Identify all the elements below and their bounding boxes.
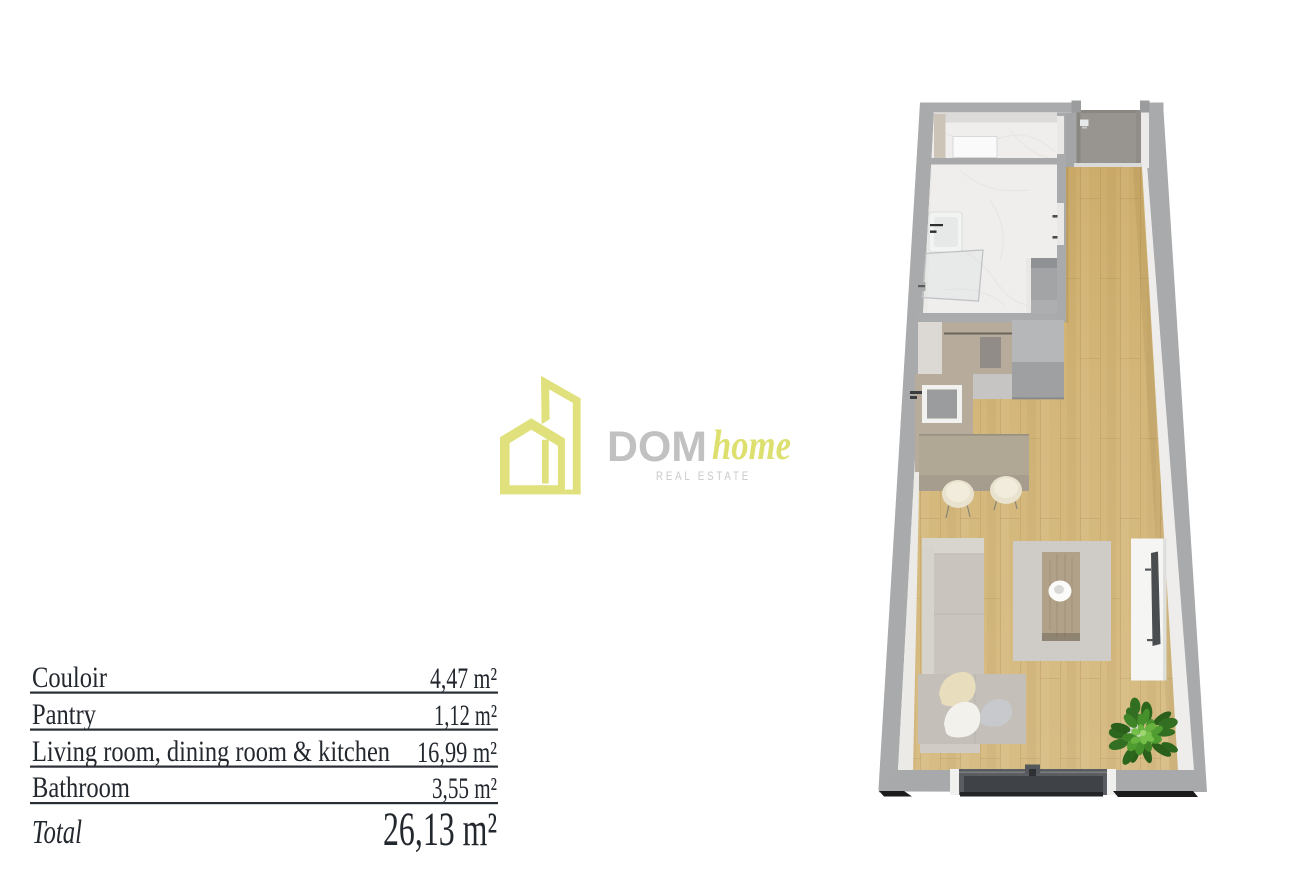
- svg-text:3,55 m²: 3,55 m²: [432, 772, 497, 805]
- svg-text:DOM: DOM: [607, 423, 707, 471]
- svg-text:16,99 m²: 16,99 m²: [417, 736, 497, 769]
- svg-text:1,12 m²: 1,12 m²: [434, 699, 497, 732]
- svg-text:home: home: [712, 423, 791, 469]
- svg-text:Total: Total: [32, 814, 82, 851]
- svg-text:Bathroom: Bathroom: [32, 771, 130, 804]
- svg-text:REAL ESTATE: REAL ESTATE: [656, 471, 751, 483]
- svg-text:Pantry: Pantry: [32, 698, 96, 731]
- svg-text:4,47 m²: 4,47 m²: [430, 662, 497, 695]
- svg-text:Living room, dining room & kit: Living room, dining room & kitchen: [32, 735, 390, 768]
- svg-text:Couloir: Couloir: [32, 661, 107, 694]
- svg-text:26,13 m²: 26,13 m²: [383, 803, 497, 856]
